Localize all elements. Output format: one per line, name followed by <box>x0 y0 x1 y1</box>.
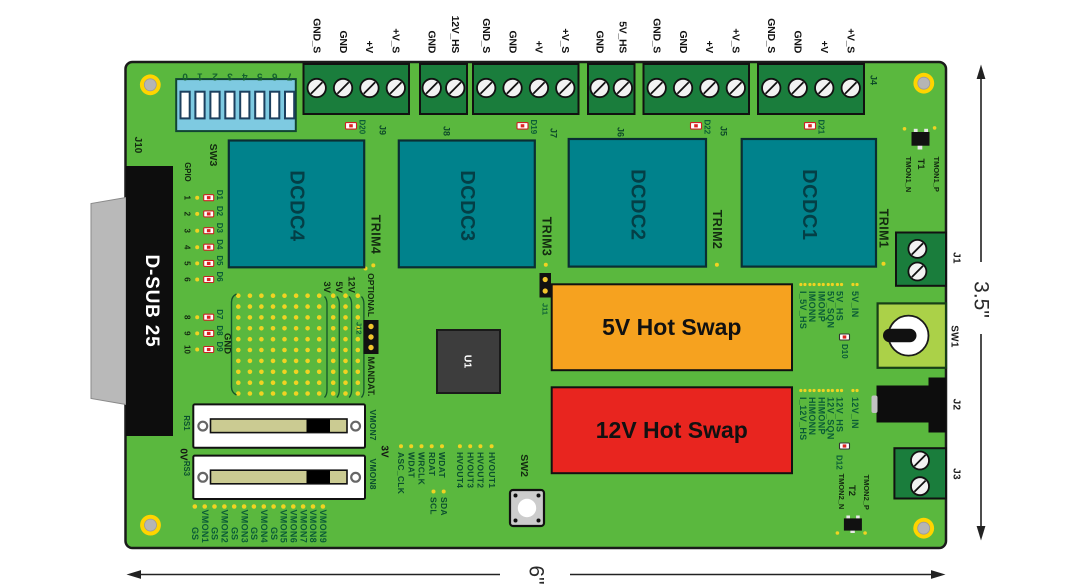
svg-text:5V_HS: 5V_HS <box>617 21 629 53</box>
svg-text:SCL: SCL <box>429 497 439 515</box>
svg-text:SW2: SW2 <box>518 454 530 477</box>
svg-text:5V_IN: 5V_IN <box>850 291 860 318</box>
svg-text:VMON3: VMON3 <box>239 510 249 544</box>
svg-text:I_12V_HS: I_12V_HS <box>798 397 808 440</box>
svg-text:TMON1_P: TMON1_P <box>932 157 941 192</box>
svg-text:TMON2_N: TMON2_N <box>837 474 846 510</box>
svg-text:J1: J1 <box>951 252 962 264</box>
svg-text:+V: +V <box>703 40 715 53</box>
svg-text:+V_S: +V_S <box>390 28 402 53</box>
svg-text:12V Hot Swap: 12V Hot Swap <box>596 417 748 443</box>
svg-text:J2: J2 <box>951 399 962 411</box>
svg-text:GPIO: GPIO <box>183 162 192 182</box>
svg-text:D19: D19 <box>529 120 538 135</box>
svg-text:+V_S: +V_S <box>730 28 742 53</box>
svg-text:DCDC4: DCDC4 <box>286 170 308 242</box>
svg-text:DCDC3: DCDC3 <box>456 170 478 241</box>
svg-text:J7: J7 <box>549 128 559 138</box>
svg-text:VMON1: VMON1 <box>200 510 210 544</box>
svg-text:DCDC1: DCDC1 <box>798 169 820 240</box>
svg-text:VMON9: VMON9 <box>318 510 328 544</box>
svg-text:VMON8: VMON8 <box>308 510 318 544</box>
svg-text:WDAT: WDAT <box>437 452 447 479</box>
svg-text:+V_S: +V_S <box>559 28 571 53</box>
svg-text:2: 2 <box>183 212 192 217</box>
svg-text:RS3: RS3 <box>182 461 191 477</box>
svg-text:HVOUT3: HVOUT3 <box>465 452 475 488</box>
svg-text:TMON1_N: TMON1_N <box>904 157 913 193</box>
svg-text:GND_S: GND_S <box>765 18 777 53</box>
svg-text:D5: D5 <box>215 255 224 266</box>
svg-text:GS: GS <box>190 527 200 540</box>
svg-text:3: 3 <box>227 71 233 82</box>
svg-text:I_5V_HS: I_5V_HS <box>798 291 808 329</box>
svg-text:6: 6 <box>271 71 277 82</box>
svg-text:ASC_CLK: ASC_CLK <box>396 452 406 495</box>
svg-text:D6: D6 <box>215 272 224 283</box>
svg-text:GND_S: GND_S <box>650 18 662 53</box>
svg-text:T2: T2 <box>846 485 857 496</box>
svg-text:TRIM1: TRIM1 <box>877 209 891 249</box>
svg-text:3V: 3V <box>321 281 332 293</box>
svg-text:IMONP: IMONP <box>816 291 826 322</box>
svg-text:TRIM3: TRIM3 <box>540 217 554 257</box>
svg-text:0V: 0V <box>178 448 189 461</box>
svg-text:D10: D10 <box>840 344 849 359</box>
svg-text:HVOUT2: HVOUT2 <box>476 452 486 488</box>
svg-text:D7: D7 <box>215 309 224 320</box>
svg-text:9: 9 <box>183 331 192 336</box>
svg-text:OPTIONAL: OPTIONAL <box>366 273 376 317</box>
svg-text:TRIM2: TRIM2 <box>710 210 724 250</box>
svg-text:+V: +V <box>818 40 830 53</box>
svg-text:5: 5 <box>183 261 192 266</box>
svg-text:6": 6" <box>525 565 548 584</box>
svg-text:1: 1 <box>197 71 203 82</box>
svg-text:4: 4 <box>242 71 248 82</box>
svg-text:J8: J8 <box>442 126 452 136</box>
svg-text:GS: GS <box>249 527 259 540</box>
svg-text:0: 0 <box>182 71 188 82</box>
svg-text:GND_S: GND_S <box>310 18 322 53</box>
svg-text:J5: J5 <box>719 126 729 136</box>
svg-text:MANDAT.: MANDAT. <box>366 357 376 397</box>
svg-text:5V_HS: 5V_HS <box>835 291 845 321</box>
svg-text:J12: J12 <box>355 322 364 335</box>
svg-text:J6: J6 <box>616 127 626 137</box>
svg-text:J4: J4 <box>869 75 879 85</box>
svg-text:GND: GND <box>792 31 804 54</box>
svg-text:WDAT: WDAT <box>406 452 416 479</box>
svg-text:J10: J10 <box>132 137 143 154</box>
svg-text:HIMONN: HIMONN <box>807 397 817 435</box>
svg-text:12V_HS: 12V_HS <box>835 397 845 432</box>
svg-text:VMON5: VMON5 <box>279 510 289 544</box>
svg-text:TRIM4: TRIM4 <box>369 215 383 255</box>
svg-text:VMON2: VMON2 <box>220 510 230 544</box>
svg-text:5V Hot Swap: 5V Hot Swap <box>602 314 741 340</box>
svg-text:J3: J3 <box>951 468 962 480</box>
svg-text:GS: GS <box>210 527 220 540</box>
svg-text:8: 8 <box>183 315 192 320</box>
svg-text:VMON8: VMON8 <box>368 459 378 490</box>
svg-text:+V: +V <box>363 40 375 53</box>
svg-text:4: 4 <box>183 245 192 250</box>
svg-text:10: 10 <box>183 345 192 354</box>
svg-text:IMONN: IMONN <box>807 291 817 323</box>
svg-text:T1: T1 <box>915 159 926 171</box>
svg-text:VMON6: VMON6 <box>289 510 299 544</box>
svg-text:D12: D12 <box>835 455 844 470</box>
svg-text:D3: D3 <box>215 223 224 234</box>
svg-text:2: 2 <box>212 71 218 82</box>
svg-text:GND_S: GND_S <box>480 18 492 53</box>
svg-text:GND: GND <box>677 31 689 54</box>
svg-text:+V_S: +V_S <box>845 28 857 53</box>
svg-text:3V: 3V <box>379 445 390 458</box>
svg-text:WRCLK: WRCLK <box>417 452 427 486</box>
svg-text:D1: D1 <box>215 190 224 201</box>
svg-text:GND: GND <box>426 31 438 54</box>
svg-text:HIMONP: HIMONP <box>816 397 826 435</box>
svg-text:12V_IN: 12V_IN <box>850 397 860 429</box>
svg-text:J11: J11 <box>541 303 550 315</box>
svg-text:RDAT: RDAT <box>427 452 437 477</box>
svg-text:12V_HS: 12V_HS <box>449 16 461 54</box>
svg-text:GS: GS <box>229 527 239 540</box>
svg-text:D21: D21 <box>817 120 826 135</box>
svg-text:VMON7: VMON7 <box>368 410 378 441</box>
svg-text:GND: GND <box>222 333 233 354</box>
svg-text:SW3: SW3 <box>207 144 219 167</box>
svg-text:D4: D4 <box>215 239 224 250</box>
svg-text:U1: U1 <box>462 355 474 369</box>
svg-text:RS1: RS1 <box>182 415 191 431</box>
svg-text:VMON7: VMON7 <box>298 510 308 544</box>
svg-text:12V_SQN: 12V_SQN <box>826 397 836 440</box>
svg-text:D-SUB 25: D-SUB 25 <box>141 255 162 348</box>
svg-text:5V: 5V <box>333 281 344 293</box>
svg-text:D2: D2 <box>215 206 224 217</box>
svg-text:D22: D22 <box>703 120 712 135</box>
svg-text:3.5": 3.5" <box>970 281 993 318</box>
svg-text:3: 3 <box>183 228 192 233</box>
svg-text:5V_SQN: 5V_SQN <box>826 291 836 328</box>
svg-text:GND: GND <box>593 31 605 54</box>
svg-text:GS: GS <box>269 527 279 540</box>
svg-text:7: 7 <box>286 71 292 82</box>
svg-text:5: 5 <box>257 71 263 82</box>
svg-text:GND: GND <box>506 31 518 54</box>
svg-text:HVOUT1: HVOUT1 <box>487 452 497 488</box>
svg-text:SW1: SW1 <box>949 325 960 348</box>
svg-text:6: 6 <box>183 277 192 282</box>
svg-text:HVOUT4: HVOUT4 <box>455 452 465 488</box>
svg-text:VMON4: VMON4 <box>259 510 269 544</box>
svg-text:GND: GND <box>337 31 349 54</box>
svg-text:+V: +V <box>533 40 545 53</box>
svg-text:SDA: SDA <box>439 497 449 516</box>
svg-text:DCDC2: DCDC2 <box>626 169 648 240</box>
svg-text:J9: J9 <box>378 125 388 135</box>
svg-text:12V: 12V <box>345 276 356 294</box>
svg-text:TMON2_P: TMON2_P <box>862 475 871 510</box>
svg-text:1: 1 <box>183 195 192 200</box>
svg-text:D20: D20 <box>358 120 367 135</box>
